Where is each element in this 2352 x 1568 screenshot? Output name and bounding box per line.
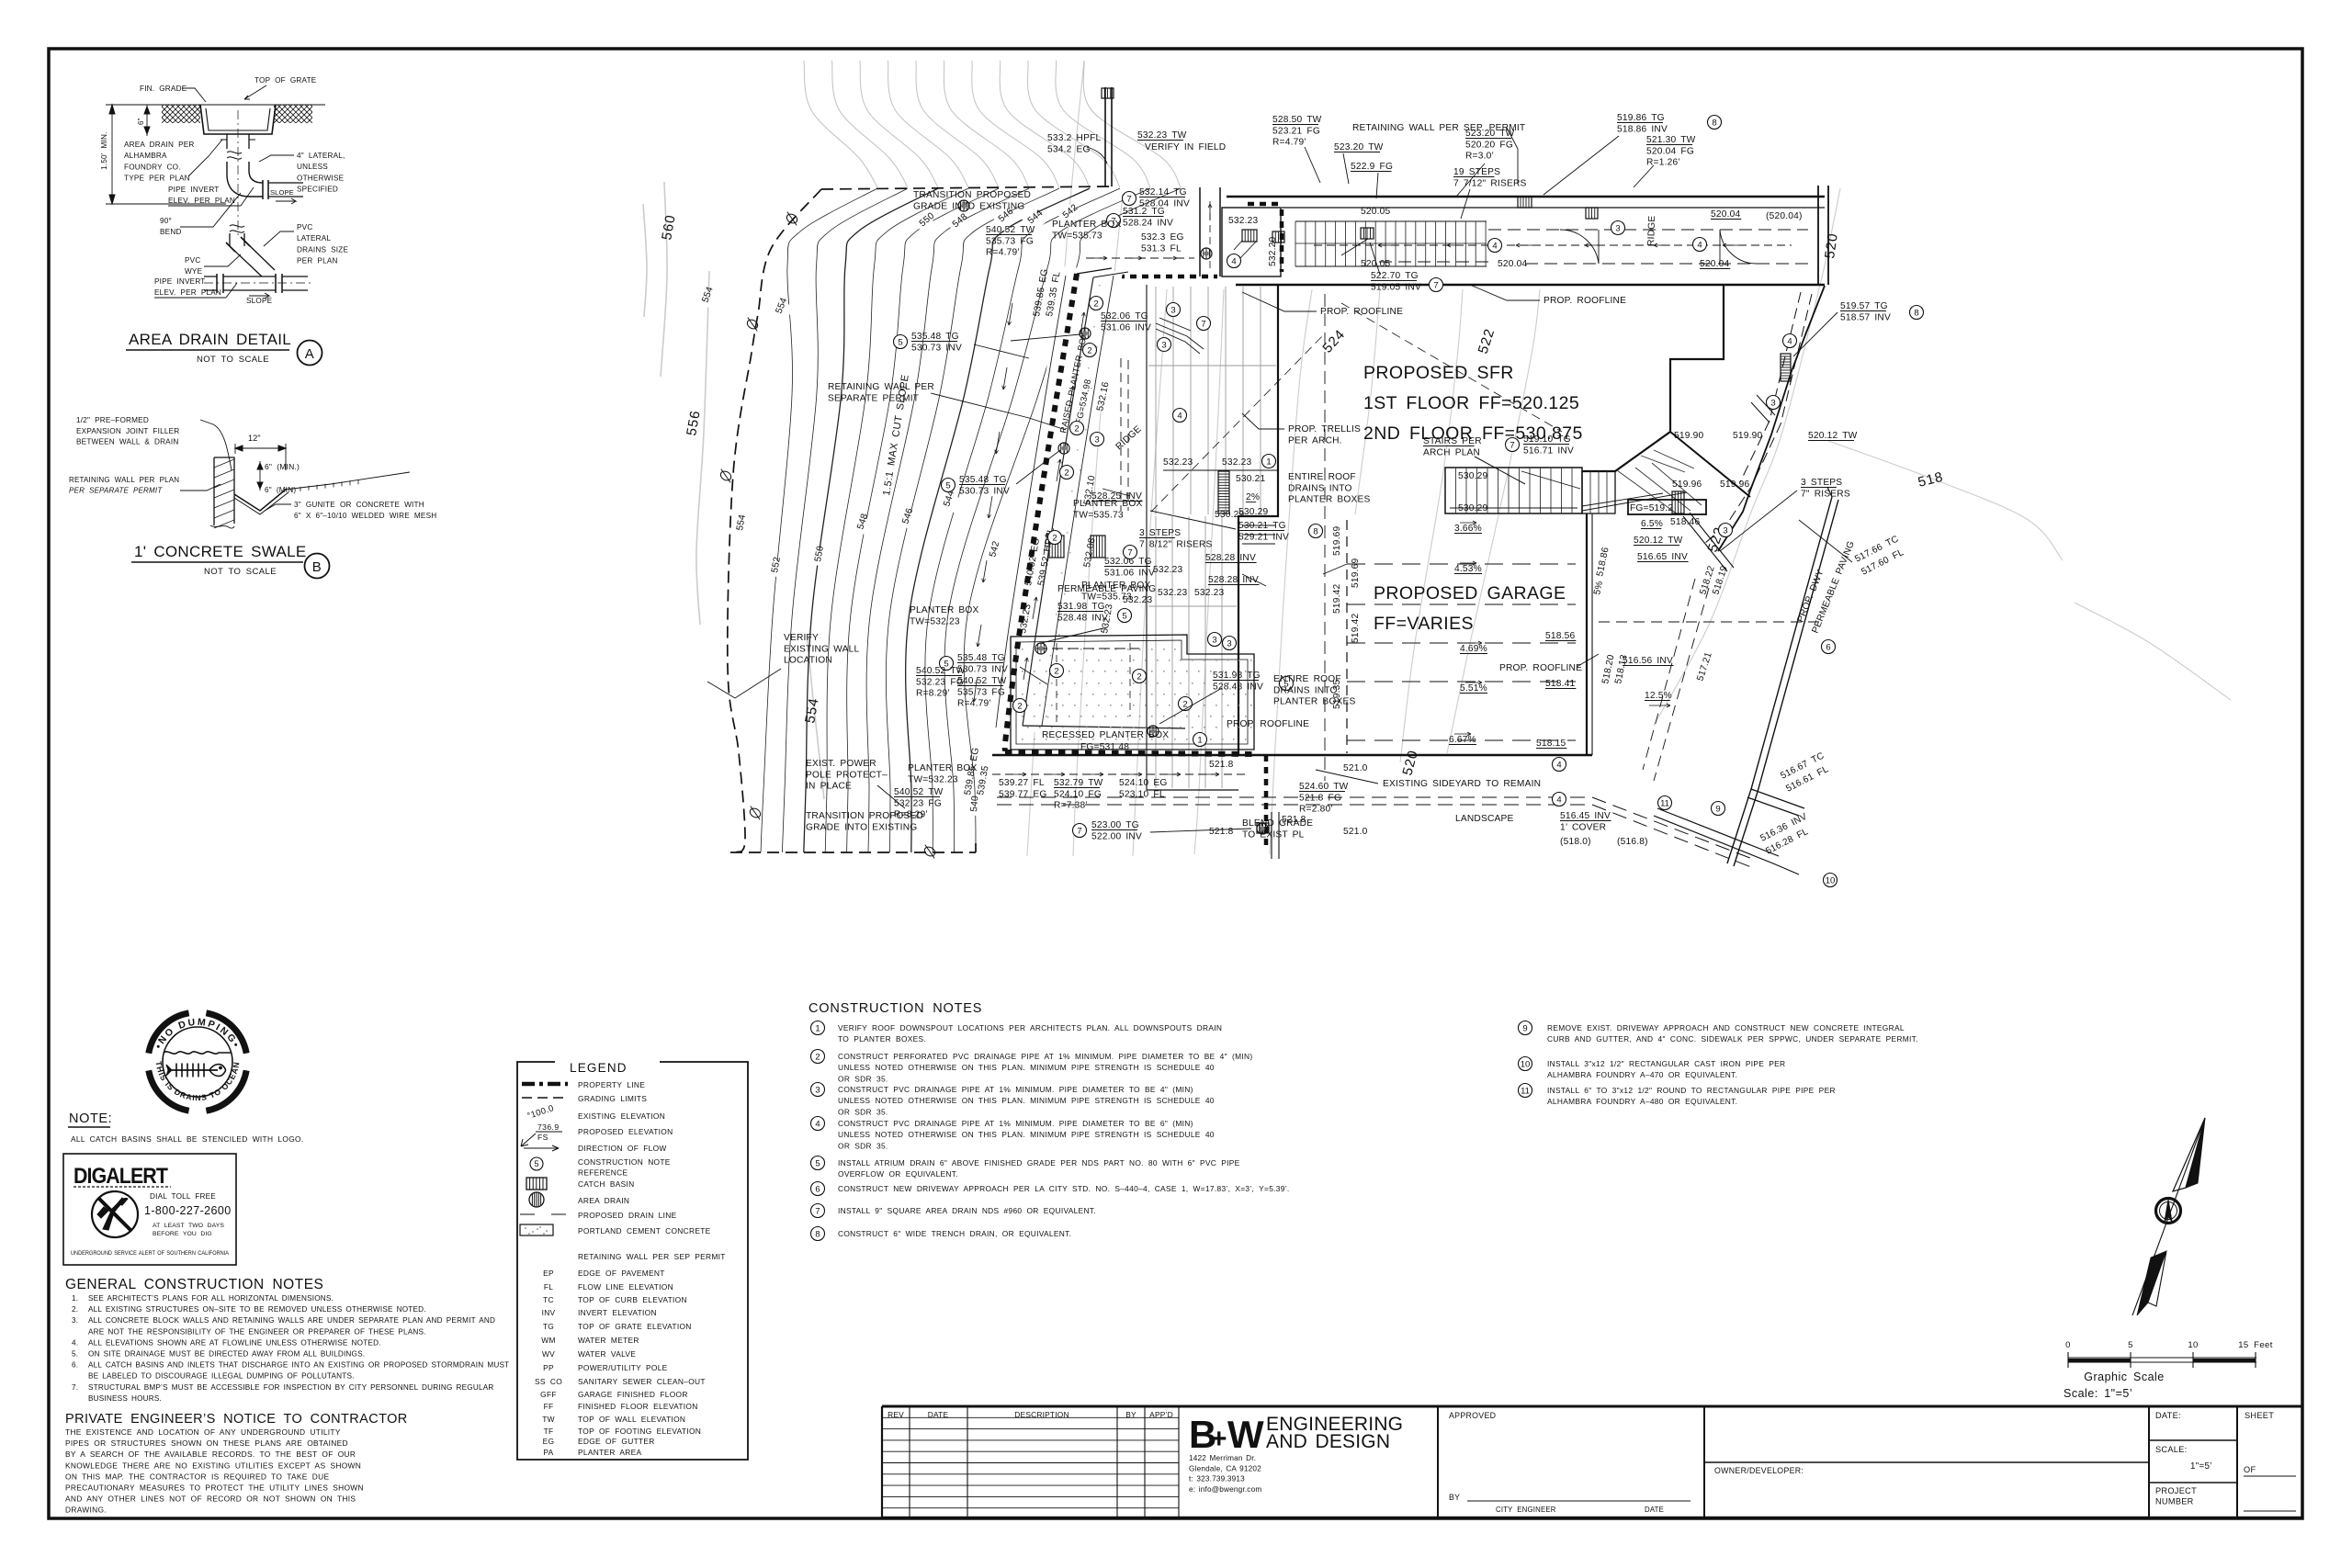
svg-text:TC: TC xyxy=(543,1295,554,1304)
svg-text:ALHAMBRA FOUNDRY A–470 OR EQUI: ALHAMBRA FOUNDRY A–470 OR EQUIVALENT. xyxy=(1547,1070,1737,1079)
svg-text:PLANTER BOX: PLANTER BOX xyxy=(1073,499,1143,509)
svg-text:R=3.0’: R=3.0’ xyxy=(1465,152,1494,162)
svg-text:TF: TF xyxy=(544,1427,554,1436)
svg-text:ARE NOT THE RESPONSIBILITY OF: ARE NOT THE RESPONSIBILITY OF THE ENGINE… xyxy=(88,1327,426,1336)
svg-text:PROPOSED DRAIN LINE: PROPOSED DRAIN LINE xyxy=(578,1211,677,1220)
svg-text:WATER VALVE: WATER VALVE xyxy=(578,1349,636,1359)
svg-text:521.8: 521.8 xyxy=(1282,815,1306,825)
svg-text:3 STEPS: 3 STEPS xyxy=(1801,478,1842,488)
svg-text:532.23: 532.23 xyxy=(1123,595,1152,605)
svg-text:R=7.38’: R=7.38’ xyxy=(1054,801,1088,811)
svg-text:FF=VARIES: FF=VARIES xyxy=(1374,614,1474,634)
svg-text:523.21 FG: 523.21 FG xyxy=(1272,126,1320,136)
svg-text:ALL CATCH BASINS SHALL BE STEN: ALL CATCH BASINS SHALL BE STENCILED WITH… xyxy=(71,1134,303,1144)
svg-text:ALL ELEVATIONS SHOWN ARE AT FL: ALL ELEVATIONS SHOWN ARE AT FLOWLINE UNL… xyxy=(88,1338,381,1347)
svg-text:DRAWING.: DRAWING. xyxy=(65,1506,107,1515)
svg-text:5: 5 xyxy=(945,480,950,491)
svg-text:TRANSITION PROPOSED: TRANSITION PROPOSED xyxy=(913,190,1031,200)
svg-text:ON THIS MAP. THE CONTRACTOR IS: ON THIS MAP. THE CONTRACTOR IS REQUIRED … xyxy=(65,1472,329,1481)
svg-text:2: 2 xyxy=(1136,671,1141,682)
svg-text:534.2 EG: 534.2 EG xyxy=(1047,144,1091,154)
svg-text:532.79 TW: 532.79 TW xyxy=(1054,778,1103,788)
svg-text:PVC: PVC xyxy=(185,256,200,265)
svg-text:519.90: 519.90 xyxy=(1733,431,1762,441)
svg-text:BUSINESS HOURS.: BUSINESS HOURS. xyxy=(88,1394,162,1403)
svg-text:PA: PA xyxy=(543,1448,553,1457)
svg-text:PERMEABLE PAVING: PERMEABLE PAVING xyxy=(1057,584,1156,594)
svg-text:FG=519.2: FG=519.2 xyxy=(1630,503,1673,513)
svg-text:FIN. GRADE: FIN. GRADE xyxy=(140,85,187,93)
svg-text:529.21 INV: 529.21 INV xyxy=(1238,532,1289,542)
svg-text:15 Feet: 15 Feet xyxy=(2238,1340,2273,1350)
svg-text:1: 1 xyxy=(1197,735,1202,745)
svg-text:ENTIRE ROOF: ENTIRE ROOF xyxy=(1288,472,1356,482)
svg-text:A: A xyxy=(305,346,314,362)
svg-text:520.04: 520.04 xyxy=(1711,209,1740,220)
svg-text:540.52 TW: 540.52 TW xyxy=(957,676,1007,686)
svg-text:6" X 6"–10/10 WELDED WIRE MESH: 6" X 6"–10/10 WELDED WIRE MESH xyxy=(294,512,436,520)
svg-text:TOP OF WALL ELEVATION: TOP OF WALL ELEVATION xyxy=(578,1415,685,1424)
svg-text:GRADE INTO EXISTING: GRADE INTO EXISTING xyxy=(806,822,917,832)
svg-text:2: 2 xyxy=(1093,299,1098,309)
svg-text:PLANTER BOX: PLANTER BOX xyxy=(908,763,978,773)
svg-text:GARAGE FINISHED FLOOR: GARAGE FINISHED FLOOR xyxy=(578,1390,688,1399)
svg-text:e: info@bwengr.com: e: info@bwengr.com xyxy=(1189,1485,1261,1494)
svg-text:LATERAL: LATERAL xyxy=(297,234,331,243)
svg-text:521.8 FG: 521.8 FG xyxy=(1299,793,1341,803)
svg-text:530.73 INV: 530.73 INV xyxy=(959,486,1010,496)
svg-text:3.66%: 3.66% xyxy=(1454,524,1482,534)
svg-text:PER ARCH.: PER ARCH. xyxy=(1288,435,1342,446)
svg-text:Graphic Scale: Graphic Scale xyxy=(2084,1371,2165,1383)
svg-text:PLANTER BOX: PLANTER BOX xyxy=(910,605,979,615)
svg-text:PIPES OR STRUCTURES SHOWN ON T: PIPES OR STRUCTURES SHOWN ON THESE PLANS… xyxy=(65,1438,348,1448)
svg-text:CONSTRUCT PVC DRAINAGE PIPE AT: CONSTRUCT PVC DRAINAGE PIPE AT 1% MINIMU… xyxy=(838,1119,1193,1128)
svg-text:OF: OF xyxy=(2244,1465,2256,1474)
svg-text:DRAINS INTO: DRAINS INTO xyxy=(1288,483,1352,493)
svg-text:3 STEPS: 3 STEPS xyxy=(1139,528,1181,538)
svg-text:W: W xyxy=(1227,1413,1264,1456)
svg-text:12": 12" xyxy=(248,434,261,443)
svg-text:SS CO: SS CO xyxy=(535,1377,562,1386)
svg-text:6": 6" xyxy=(137,118,145,125)
svg-text:BY: BY xyxy=(1449,1493,1460,1502)
svg-text:DIRECTION OF FLOW: DIRECTION OF FLOW xyxy=(578,1144,667,1153)
svg-text:1’ COVER: 1’ COVER xyxy=(1560,822,1606,832)
svg-text:6" (MIN): 6" (MIN) xyxy=(265,486,296,494)
svg-text:3: 3 xyxy=(1170,305,1175,315)
svg-text:535.48 TG: 535.48 TG xyxy=(959,475,1007,485)
svg-text:OR SDR 35.: OR SDR 35. xyxy=(838,1141,888,1150)
svg-text:FINISHED FLOOR ELEVATION: FINISHED FLOOR ELEVATION xyxy=(578,1402,698,1411)
svg-text:532.23: 532.23 xyxy=(1163,457,1193,468)
svg-text:LOCATION: LOCATION xyxy=(784,656,832,666)
svg-text:PLANTER BOXES: PLANTER BOXES xyxy=(1273,697,1356,707)
svg-text:FS: FS xyxy=(537,1133,548,1142)
svg-text:LANDSCAPE: LANDSCAPE xyxy=(1455,814,1514,824)
svg-text:SHEET: SHEET xyxy=(2245,1411,2274,1420)
svg-text:7: 7 xyxy=(815,1206,820,1216)
svg-text:PROP. ROOFLINE: PROP. ROOFLINE xyxy=(1227,719,1309,729)
svg-text:524.60 TW: 524.60 TW xyxy=(1299,782,1349,792)
svg-text:UNLESS: UNLESS xyxy=(297,163,328,171)
svg-text:PLANTER AREA: PLANTER AREA xyxy=(578,1448,642,1457)
svg-text:518.56: 518.56 xyxy=(1545,631,1575,641)
svg-text:4: 4 xyxy=(1177,411,1182,421)
svg-text:519.05 INV: 519.05 INV xyxy=(1371,282,1421,292)
svg-text:540.52 TW: 540.52 TW xyxy=(986,225,1035,235)
svg-text:ON SITE DRAINAGE MUST BE DIREC: ON SITE DRAINAGE MUST BE DIRECTED AWAY F… xyxy=(88,1350,365,1359)
svg-text:SEE ARCHITECT’S PLANS FOR ALL: SEE ARCHITECT’S PLANS FOR ALL HORIZONTAL… xyxy=(88,1294,334,1303)
svg-text:UNLESS NOTED OTHERWISE ON THIS: UNLESS NOTED OTHERWISE ON THIS PLAN. MIN… xyxy=(838,1130,1215,1139)
svg-text:t: 323.739.3913: t: 323.739.3913 xyxy=(1189,1475,1245,1483)
svg-text:540: 540 xyxy=(969,795,981,813)
svg-text:518.57 INV: 518.57 INV xyxy=(1840,312,1891,322)
svg-text:VERIFY IN FIELD: VERIFY IN FIELD xyxy=(1145,142,1226,152)
svg-text:RIDGE: RIDGE xyxy=(1646,215,1657,246)
svg-text:2: 2 xyxy=(1052,533,1057,543)
svg-text:SEPARATE PERMIT: SEPARATE PERMIT xyxy=(828,393,919,403)
svg-text:2: 2 xyxy=(815,1052,820,1062)
svg-text:4.53%: 4.53% xyxy=(1454,564,1482,574)
svg-text:520.12 TW: 520.12 TW xyxy=(1808,431,1858,441)
svg-text:4" LATERAL,: 4" LATERAL, xyxy=(297,152,345,160)
svg-text:535.73 FG: 535.73 FG xyxy=(957,687,1005,697)
svg-text:OR SDR 35.: OR SDR 35. xyxy=(838,1107,888,1116)
svg-text:REMOVE EXIST. DRIVEWAY APPROAC: REMOVE EXIST. DRIVEWAY APPROACH AND CONS… xyxy=(1547,1023,1905,1032)
svg-text:EXISTING WALL: EXISTING WALL xyxy=(784,644,859,654)
svg-text:532.23: 532.23 xyxy=(1228,216,1258,226)
svg-text:532.23 TW: 532.23 TW xyxy=(1137,130,1187,141)
svg-text:521.8: 521.8 xyxy=(1209,827,1234,837)
svg-text:7" RISERS: 7" RISERS xyxy=(1801,489,1850,499)
svg-text:5: 5 xyxy=(534,1159,538,1168)
svg-text:11: 11 xyxy=(1521,1086,1530,1096)
svg-text:VERIFY: VERIFY xyxy=(784,633,819,643)
svg-text:PLANTER BOX: PLANTER BOX xyxy=(1052,220,1122,230)
svg-text:R=4.79’: R=4.79’ xyxy=(1272,138,1306,148)
svg-text:516.45 INV: 516.45 INV xyxy=(1560,811,1611,821)
svg-text:TOP OF FOOTING ELEVATION: TOP OF FOOTING ELEVATION xyxy=(578,1427,701,1436)
svg-text:519.57 TG: 519.57 TG xyxy=(1840,301,1888,311)
svg-text:532.23 FG: 532.23 FG xyxy=(916,677,964,687)
svg-text:BETWEEN WALL & DRAIN: BETWEEN WALL & DRAIN xyxy=(76,438,178,446)
svg-text:OVERFLOW OR EQUIVALENT.: OVERFLOW OR EQUIVALENT. xyxy=(838,1169,958,1179)
svg-text:OR SDR 35.: OR SDR 35. xyxy=(838,1074,888,1083)
svg-text:520.12 TW: 520.12 TW xyxy=(1634,536,1683,546)
svg-text:R=4.79’: R=4.79’ xyxy=(986,248,1020,258)
svg-text:523.20 TW: 523.20 TW xyxy=(1334,142,1384,152)
svg-text:4: 4 xyxy=(1787,336,1792,346)
svg-text:522.70 TG: 522.70 TG xyxy=(1371,271,1419,281)
svg-text:ALHAMBRA: ALHAMBRA xyxy=(124,152,167,160)
svg-text:POWER/UTILITY POLE: POWER/UTILITY POLE xyxy=(578,1363,668,1372)
svg-text:INV: INV xyxy=(542,1308,556,1317)
svg-text:528.48 INV: 528.48 INV xyxy=(1213,682,1263,692)
svg-text:INSTALL ATRIUM DRAIN 6" ABOVE: INSTALL ATRIUM DRAIN 6" ABOVE FINISHED G… xyxy=(838,1158,1240,1168)
svg-text:ALHAMBRA FOUNDRY A–480 OR EQUI: ALHAMBRA FOUNDRY A–480 OR EQUIVALENT. xyxy=(1547,1097,1737,1106)
svg-text:PROP. TRELLIS: PROP. TRELLIS xyxy=(1288,424,1361,434)
svg-text:FOUNDRY CO.: FOUNDRY CO. xyxy=(124,163,181,171)
svg-text:528.28 INV: 528.28 INV xyxy=(1205,553,1256,563)
svg-text:519.96: 519.96 xyxy=(1720,479,1749,490)
svg-text:530.29: 530.29 xyxy=(1215,510,1244,520)
svg-text:R=8.29’: R=8.29’ xyxy=(916,689,950,699)
svg-text:5: 5 xyxy=(898,337,902,347)
svg-text:CONSTRUCT PERFORATED PVC DRAIN: CONSTRUCT PERFORATED PVC DRAINAGE PIPE A… xyxy=(838,1052,1252,1061)
svg-text:528.24 INV: 528.24 INV xyxy=(1123,218,1173,228)
svg-text:9: 9 xyxy=(1715,804,1720,814)
svg-text:SANITARY SEWER CLEAN–OUT: SANITARY SEWER CLEAN–OUT xyxy=(578,1377,706,1386)
svg-text:532.3 EG: 532.3 EG xyxy=(1141,232,1184,243)
svg-text:518.86 INV: 518.86 INV xyxy=(1617,124,1668,134)
svg-text:IN PLACE: IN PLACE xyxy=(806,782,852,792)
svg-text:TOP OF GRATE: TOP OF GRATE xyxy=(254,76,317,85)
svg-text:521.8: 521.8 xyxy=(1209,760,1234,770)
svg-text:9: 9 xyxy=(1522,1023,1527,1033)
svg-text:6.5%: 6.5% xyxy=(1641,519,1663,529)
svg-text:7: 7 xyxy=(1127,547,1132,558)
svg-text:533.2 HPFL: 533.2 HPFL xyxy=(1047,133,1101,143)
svg-text:8: 8 xyxy=(1712,118,1716,128)
svg-text:ELEV. PER PLAN: ELEV. PER PLAN xyxy=(154,288,221,297)
svg-text:AREA DRAIN: AREA DRAIN xyxy=(578,1196,629,1205)
svg-text:PROPOSED ELEVATION: PROPOSED ELEVATION xyxy=(578,1127,673,1136)
svg-text:10: 10 xyxy=(2188,1340,2198,1350)
svg-text:519.42: 519.42 xyxy=(1332,584,1342,614)
svg-text:8: 8 xyxy=(1313,526,1317,536)
svg-text:STAIRS PER: STAIRS PER xyxy=(1423,436,1482,446)
svg-text:AT LEAST TWO DAYS: AT LEAST TWO DAYS xyxy=(153,1223,224,1229)
svg-text:PRECAUTIONARY MEASURES TO PROT: PRECAUTIONARY MEASURES TO PROTECT THE UT… xyxy=(65,1483,364,1493)
svg-text:2.: 2. xyxy=(72,1305,78,1314)
svg-text:531.98 TG: 531.98 TG xyxy=(1057,602,1105,612)
svg-text:WYE: WYE xyxy=(185,267,203,276)
svg-text:3: 3 xyxy=(1094,434,1099,445)
svg-text:520.05: 520.05 xyxy=(1361,207,1390,217)
svg-text:WV: WV xyxy=(542,1349,555,1359)
svg-text:CONSTRUCT PVC DRAINAGE PIPE AT: CONSTRUCT PVC DRAINAGE PIPE AT 1% MINIMU… xyxy=(838,1085,1193,1094)
svg-text:6.67%: 6.67% xyxy=(1449,735,1476,745)
svg-text:519.10 TG: 519.10 TG xyxy=(1523,434,1571,445)
svg-text:BY A SEARCH OF THE AVAILABLE R: BY A SEARCH OF THE AVAILABLE RECORDS. TO… xyxy=(65,1450,356,1459)
svg-text:VERIFY ROOF DOWNSPOUT LOCATION: VERIFY ROOF DOWNSPOUT LOCATIONS PER ARCH… xyxy=(838,1023,1222,1032)
svg-text:530.21: 530.21 xyxy=(1236,474,1265,484)
svg-text:520.04: 520.04 xyxy=(1700,259,1729,269)
svg-text:2: 2 xyxy=(1087,345,1091,355)
svg-text:PIPE INVERT: PIPE INVERT xyxy=(168,186,220,194)
svg-text:530.73 INV: 530.73 INV xyxy=(911,343,962,353)
svg-text:TW=532.23: TW=532.23 xyxy=(910,616,960,626)
svg-text:+: + xyxy=(1211,1424,1227,1454)
svg-text:1ST FLOOR FF=520.125: 1ST FLOOR FF=520.125 xyxy=(1363,393,1579,413)
svg-text:INVERT ELEVATION: INVERT ELEVATION xyxy=(578,1308,657,1317)
svg-text:EXPANSION JOINT FILLER: EXPANSION JOINT FILLER xyxy=(76,427,179,435)
svg-text:NOT TO SCALE: NOT TO SCALE xyxy=(204,567,277,577)
svg-text:528.48 INV: 528.48 INV xyxy=(1057,613,1108,623)
svg-text:Scale: 1"=5’: Scale: 1"=5’ xyxy=(2064,1387,2132,1400)
svg-text:PER SEPARATE PERMIT: PER SEPARATE PERMIT xyxy=(69,487,163,495)
svg-text:(518.0): (518.0) xyxy=(1560,837,1591,847)
svg-text:532.06 TG: 532.06 TG xyxy=(1101,311,1148,321)
svg-text:8: 8 xyxy=(815,1229,820,1239)
svg-text:SLOPE: SLOPE xyxy=(246,297,273,305)
svg-text:TO PLANTER BOXES.: TO PLANTER BOXES. xyxy=(838,1034,926,1043)
svg-text:522.9 FG: 522.9 FG xyxy=(1351,162,1393,172)
svg-text:2%: 2% xyxy=(1246,492,1260,502)
svg-text:11: 11 xyxy=(1660,798,1669,808)
svg-text:516.71 INV: 516.71 INV xyxy=(1523,446,1574,456)
svg-text:TW=535.73: TW=535.73 xyxy=(1052,231,1102,241)
svg-text:3: 3 xyxy=(1615,223,1620,233)
svg-text:REFERENCE: REFERENCE xyxy=(578,1168,628,1178)
svg-text:530.29: 530.29 xyxy=(1458,503,1487,513)
svg-text:7.: 7. xyxy=(72,1383,78,1392)
svg-text:DIAL TOLL FREE: DIAL TOLL FREE xyxy=(150,1192,216,1201)
svg-text:ALL CATCH BASINS AND INLETS TH: ALL CATCH BASINS AND INLETS THAT DISCHAR… xyxy=(88,1361,509,1370)
svg-text:12.5%: 12.5% xyxy=(1645,691,1672,701)
svg-text:ALL EXISTING STRUCTURES ON–SIT: ALL EXISTING STRUCTURES ON–SITE TO BE RE… xyxy=(88,1305,426,1314)
svg-text:TW=535.73: TW=535.73 xyxy=(1073,510,1124,520)
svg-text:2: 2 xyxy=(1054,666,1058,676)
svg-text:3: 3 xyxy=(1212,635,1216,645)
svg-text:532.14 TG: 532.14 TG xyxy=(1139,187,1187,197)
svg-text:5.: 5. xyxy=(72,1350,78,1359)
svg-text:2: 2 xyxy=(1064,468,1069,478)
svg-text:PROJECT: PROJECT xyxy=(2155,1486,2197,1495)
svg-text:PLANTER BOXES: PLANTER BOXES xyxy=(1288,495,1371,505)
svg-text:ELEV. PER PLAN: ELEV. PER PLAN xyxy=(168,197,235,205)
svg-text:522.00 INV: 522.00 INV xyxy=(1091,831,1142,841)
svg-text:532.23: 532.23 xyxy=(1158,588,1187,598)
svg-text:PVC: PVC xyxy=(297,223,312,231)
svg-text:INSTALL 3"x12 1/2" RECTANGULAR: INSTALL 3"x12 1/2" RECTANGULAR CAST IRON… xyxy=(1547,1059,1785,1068)
svg-text:10: 10 xyxy=(1521,1059,1531,1069)
svg-text:4: 4 xyxy=(1231,256,1236,266)
svg-text:2: 2 xyxy=(1017,701,1022,711)
svg-text:B: B xyxy=(312,559,322,575)
svg-text:WATER METER: WATER METER xyxy=(578,1336,639,1345)
svg-text:R=4.79’: R=4.79’ xyxy=(957,699,991,709)
svg-text:SPECIFIED: SPECIFIED xyxy=(297,186,338,194)
svg-text:521.0: 521.0 xyxy=(1343,763,1368,773)
svg-text:1/2" PRE–FORMED: 1/2" PRE–FORMED xyxy=(76,416,149,424)
svg-text:6: 6 xyxy=(1826,642,1830,652)
svg-text:4: 4 xyxy=(1556,760,1561,770)
svg-text:6" (MIN.): 6" (MIN.) xyxy=(265,462,300,471)
svg-text:SCALE:: SCALE: xyxy=(2155,1445,2187,1454)
svg-text:3" GUNITE OR CONCRETE WITH: 3" GUNITE OR CONCRETE WITH xyxy=(294,501,424,509)
svg-text:AND ANY OTHER LINES NOT OF REC: AND ANY OTHER LINES NOT OF RECORD OR NOT… xyxy=(65,1495,356,1504)
svg-text:BEND: BEND xyxy=(160,228,182,236)
svg-text:90°: 90° xyxy=(160,217,172,225)
svg-text:7: 7 xyxy=(1433,280,1438,290)
svg-text:519.69: 519.69 xyxy=(1332,526,1342,556)
svg-text:4: 4 xyxy=(815,1119,820,1129)
svg-text:ALL CONCRETE BLOCK WALLS AND R: ALL CONCRETE BLOCK WALLS AND RETAINING W… xyxy=(88,1316,495,1325)
svg-text:PORTLAND CEMENT CONCRETE: PORTLAND CEMENT CONCRETE xyxy=(578,1226,711,1235)
svg-text:518.15: 518.15 xyxy=(1536,739,1566,749)
svg-text:528.28 INV: 528.28 INV xyxy=(1208,575,1259,585)
svg-text:INSTALL 6" TO 3"x12 1/2" ROUND: INSTALL 6" TO 3"x12 1/2" ROUND TO RECTAN… xyxy=(1547,1086,1836,1095)
svg-text:PRIVATE ENGINEER’S NOTICE TO C: PRIVATE ENGINEER’S NOTICE TO CONTRACTOR xyxy=(65,1412,408,1427)
svg-text:521.30 TW: 521.30 TW xyxy=(1646,135,1696,145)
svg-text:EDGE OF PAVEMENT: EDGE OF PAVEMENT xyxy=(578,1269,665,1278)
svg-text:532.23: 532.23 xyxy=(1153,565,1182,575)
svg-text:519.90: 519.90 xyxy=(1674,431,1703,441)
svg-text:519.69: 519.69 xyxy=(1351,558,1361,588)
svg-text:10: 10 xyxy=(1826,875,1836,886)
svg-text:PROP. ROOFLINE: PROP. ROOFLINE xyxy=(1543,296,1626,306)
svg-text:530.21 TG: 530.21 TG xyxy=(1238,521,1286,531)
svg-text:RETAINING WALL PER PLAN: RETAINING WALL PER PLAN xyxy=(69,476,179,484)
svg-text:TOP OF CURB ELEVATION: TOP OF CURB ELEVATION xyxy=(578,1295,687,1304)
svg-text:PROPOSED SFR: PROPOSED SFR xyxy=(1363,363,1514,383)
svg-text:8: 8 xyxy=(1914,308,1918,318)
svg-text:6.: 6. xyxy=(72,1361,78,1370)
svg-text:519.42: 519.42 xyxy=(1351,614,1361,643)
svg-text:BE LABELED TO DISCOURAGE ILLEG: BE LABELED TO DISCOURAGE ILLEGAL DUMPING… xyxy=(88,1372,355,1381)
svg-text:APPROVED: APPROVED xyxy=(1449,1411,1496,1420)
svg-text:DRAINS SIZE: DRAINS SIZE xyxy=(297,245,348,254)
svg-text:CONSTRUCT NEW DRIVEWAY APPROAC: CONSTRUCT NEW DRIVEWAY APPROACH PER LA C… xyxy=(838,1184,1289,1193)
svg-text:TO EXIST PL: TO EXIST PL xyxy=(1242,829,1305,840)
svg-text:519.86 TG: 519.86 TG xyxy=(1617,113,1665,123)
svg-text:THE EXISTENCE AND LOCATION OF: THE EXISTENCE AND LOCATION OF ANY UNDERG… xyxy=(65,1427,341,1437)
svg-text:UNDERGROUND SERVICE ALERT OF S: UNDERGROUND SERVICE ALERT OF SOUTHERN CA… xyxy=(71,1250,229,1257)
svg-text:1.: 1. xyxy=(72,1294,78,1303)
svg-text:3: 3 xyxy=(1770,398,1775,408)
svg-text:NUMBER: NUMBER xyxy=(2155,1497,2194,1506)
svg-text:FLOW LINE ELEVATION: FLOW LINE ELEVATION xyxy=(578,1282,673,1292)
svg-text:PROPERTY LINE: PROPERTY LINE xyxy=(578,1080,645,1089)
svg-text:520.20 FG: 520.20 FG xyxy=(1465,140,1513,150)
svg-text:516.65 INV: 516.65 INV xyxy=(1637,552,1688,562)
svg-text:SLOPE: SLOPE xyxy=(270,188,294,197)
svg-text:1' CONCRETE SWALE: 1' CONCRETE SWALE xyxy=(134,543,307,560)
svg-text:523.10 FL: 523.10 FL xyxy=(1119,789,1165,799)
svg-text:Glendale, CA 91202: Glendale, CA 91202 xyxy=(1189,1464,1261,1472)
svg-text:516.56 INV: 516.56 INV xyxy=(1623,656,1673,666)
svg-text:UNLESS NOTED OTHERWISE ON THIS: UNLESS NOTED OTHERWISE ON THIS PLAN. MIN… xyxy=(838,1063,1215,1072)
svg-text:532.23: 532.23 xyxy=(1222,457,1251,468)
svg-text:531.06 INV: 531.06 INV xyxy=(1104,568,1155,578)
svg-text:0: 0 xyxy=(2065,1340,2071,1350)
svg-text:540.52 TW: 540.52 TW xyxy=(916,666,966,676)
svg-text:CONSTRUCT 6" WIDE TRENCH DRAIN: CONSTRUCT 6" WIDE TRENCH DRAIN, OR EQUIV… xyxy=(838,1229,1071,1238)
svg-text:5: 5 xyxy=(815,1158,820,1168)
svg-text:PER PLAN: PER PLAN xyxy=(297,257,338,265)
svg-text:PROP. ROOFLINE: PROP. ROOFLINE xyxy=(1320,307,1403,317)
svg-text:TW: TW xyxy=(542,1415,555,1424)
svg-text:OWNER/DEVELOPER:: OWNER/DEVELOPER: xyxy=(1714,1466,1804,1475)
svg-text:STRUCTURAL BMP’S MUST BE ACCES: STRUCTURAL BMP’S MUST BE ACCESSIBLE FOR … xyxy=(88,1383,494,1392)
svg-text:7 8/12" RISERS: 7 8/12" RISERS xyxy=(1139,539,1213,549)
svg-text:PROP. ROOFLINE: PROP. ROOFLINE xyxy=(1499,663,1582,673)
svg-text:PP: PP xyxy=(543,1363,554,1372)
svg-text:CONSTRUCTION NOTES: CONSTRUCTION NOTES xyxy=(808,1001,982,1016)
svg-text:518.41: 518.41 xyxy=(1545,679,1575,689)
svg-text:GRADING LIMITS: GRADING LIMITS xyxy=(578,1094,647,1103)
svg-text:TOP OF GRATE ELEVATION: TOP OF GRATE ELEVATION xyxy=(578,1322,692,1331)
svg-text:3: 3 xyxy=(1723,525,1727,536)
svg-text:3: 3 xyxy=(1227,638,1231,649)
svg-text:GENERAL CONSTRUCTION NOTES: GENERAL CONSTRUCTION NOTES xyxy=(65,1277,323,1292)
svg-text:531.06 INV: 531.06 INV xyxy=(1101,322,1151,333)
svg-text:EXISTING ELEVATION: EXISTING ELEVATION xyxy=(578,1111,665,1121)
svg-text:7: 7 xyxy=(1201,319,1205,329)
svg-text:535.48 TG: 535.48 TG xyxy=(911,332,959,342)
